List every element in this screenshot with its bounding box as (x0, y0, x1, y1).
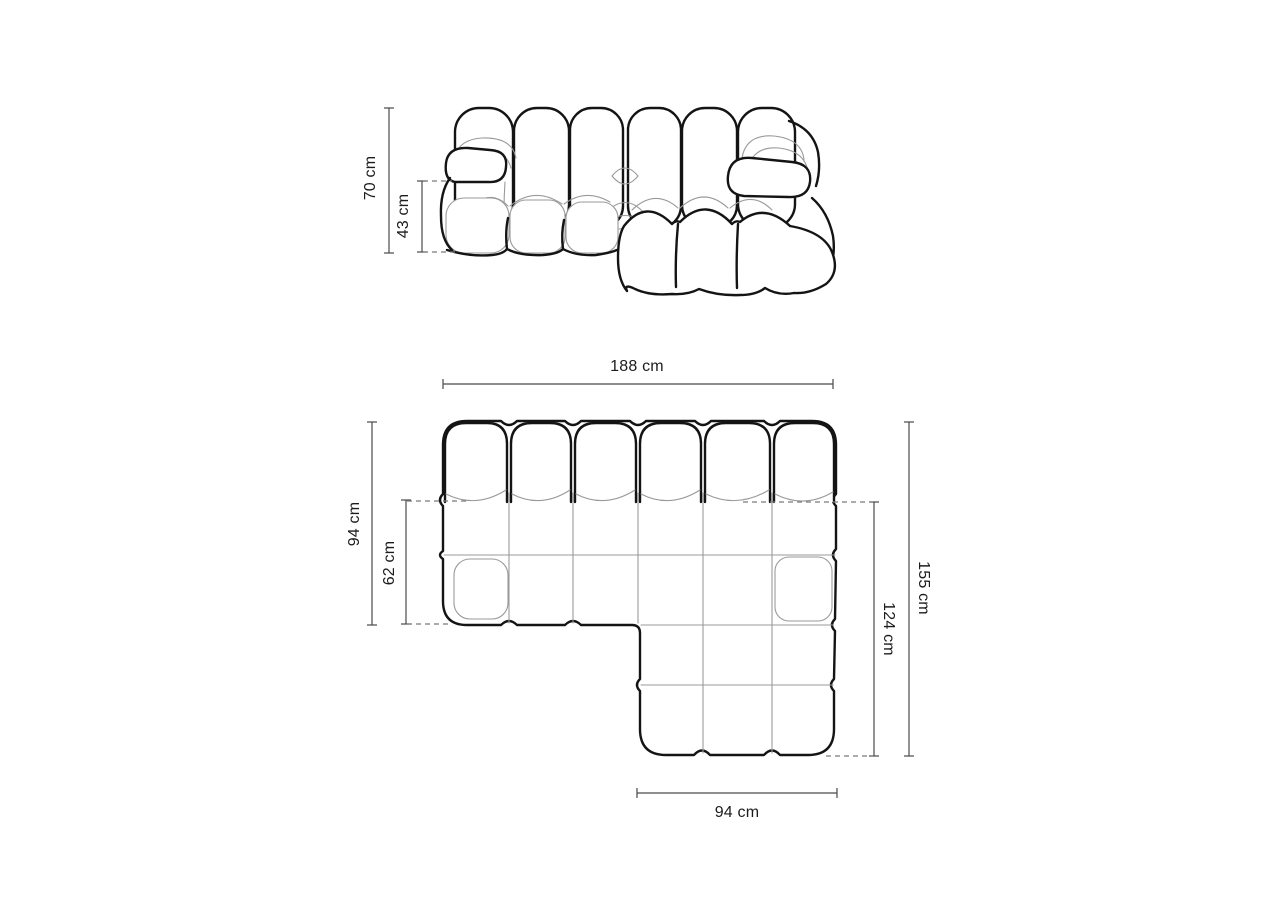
dimension-label-overall-width: 188 cm (610, 358, 664, 376)
dimension-label-overall-height: 70 cm (362, 156, 380, 201)
top-view-sofa (440, 421, 836, 755)
front-view-sofa (441, 108, 835, 295)
dimension-label-overall-depth: 155 cm (914, 561, 932, 615)
dimension-label-seat-depth: 62 cm (381, 541, 399, 586)
dimension-label-chaise-width: 94 cm (715, 804, 760, 822)
diagram-linework (0, 0, 1280, 905)
sofa-dimension-diagram: 70 cm 43 cm 188 cm 94 cm 62 cm 155 cm 12… (0, 0, 1280, 905)
dimension-label-side-depth: 94 cm (346, 502, 364, 547)
dimension-label-seat-height: 43 cm (395, 194, 413, 239)
dimension-label-chaise-inner-length: 124 cm (879, 602, 897, 656)
